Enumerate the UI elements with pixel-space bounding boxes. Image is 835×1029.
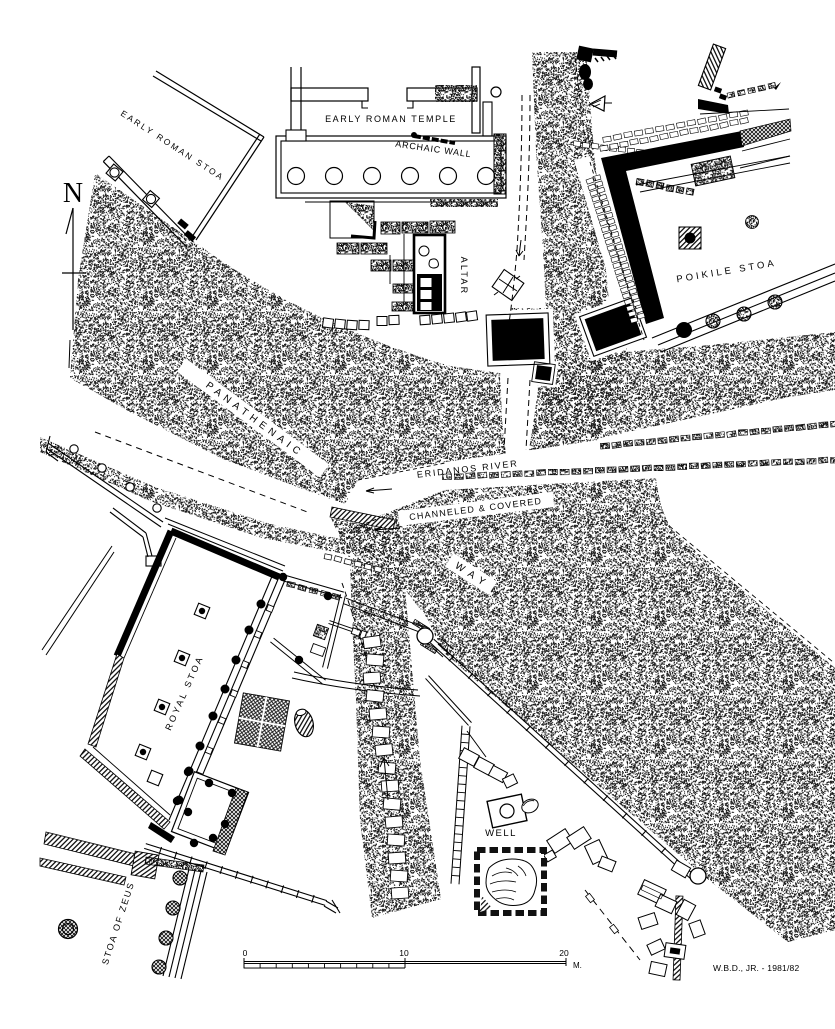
svg-text:WELL: WELL <box>485 828 517 839</box>
svg-text:0: 0 <box>243 948 248 958</box>
svg-text:M.: M. <box>573 961 582 970</box>
svg-text:EARLY ROMAN TEMPLE: EARLY ROMAN TEMPLE <box>325 114 457 124</box>
svg-text:20: 20 <box>559 948 569 958</box>
svg-text:W.B.D., JR. - 1981/82: W.B.D., JR. - 1981/82 <box>713 963 799 973</box>
svg-text:10: 10 <box>399 948 409 958</box>
svg-text:N: N <box>63 178 83 209</box>
svg-text:ALTAR: ALTAR <box>459 257 469 296</box>
